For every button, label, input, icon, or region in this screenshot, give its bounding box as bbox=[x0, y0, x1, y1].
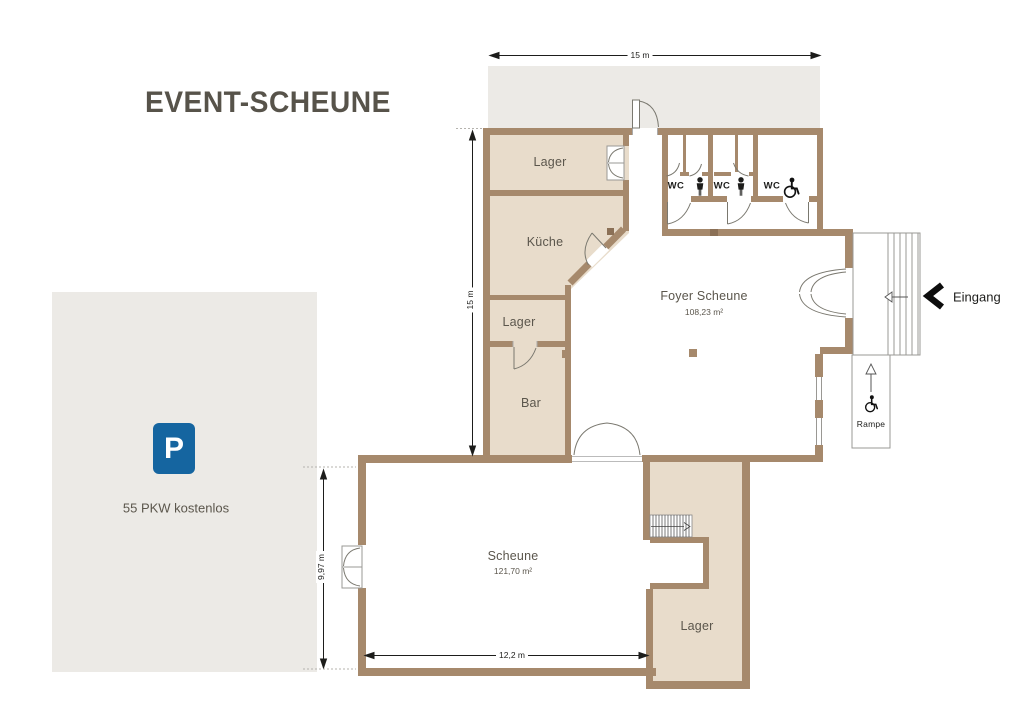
terrace-area bbox=[488, 66, 820, 128]
wheelchair-icon bbox=[785, 178, 799, 198]
room-area-scheune: 121,70 m² bbox=[494, 566, 532, 576]
entrance-stairs bbox=[853, 233, 920, 355]
room-label-lager-mid: Lager bbox=[503, 315, 536, 329]
person-icon bbox=[738, 177, 745, 196]
dimension-scheune-height: 9,97 m bbox=[316, 551, 326, 583]
room-label-scheune: Scheune bbox=[488, 549, 539, 563]
entrance-label: Eingang bbox=[953, 290, 1001, 305]
room-label-wc-left: WC bbox=[668, 181, 685, 192]
room-label-wc-accessible: WC bbox=[764, 181, 781, 192]
dimension-top-width: 15 m bbox=[628, 50, 653, 60]
room-label-lager-top: Lager bbox=[534, 155, 567, 169]
room-label-wc-middle: WC bbox=[714, 181, 731, 192]
chevron-left-icon bbox=[928, 285, 942, 307]
floorplan-canvas: EVENT-SCHEUNE P 55 PKW kostenlos bbox=[0, 0, 1024, 724]
room-label-kueche: Küche bbox=[527, 235, 563, 249]
ramp-label: Rampe bbox=[857, 419, 885, 429]
room-label-foyer: Foyer Scheune bbox=[660, 289, 747, 303]
block-stairs bbox=[650, 515, 692, 537]
room-label-lager-bottom: Lager bbox=[681, 619, 714, 633]
person-icon bbox=[697, 177, 704, 196]
room-label-bar: Bar bbox=[521, 396, 541, 410]
dimension-scheune-width: 12,2 m bbox=[496, 650, 528, 660]
floorplan-drawing bbox=[0, 0, 1024, 724]
ramp bbox=[852, 355, 890, 448]
dimension-left-height: 15 m bbox=[465, 288, 475, 313]
room-area-foyer: 108,23 m² bbox=[685, 307, 723, 317]
room-fills bbox=[488, 133, 750, 689]
